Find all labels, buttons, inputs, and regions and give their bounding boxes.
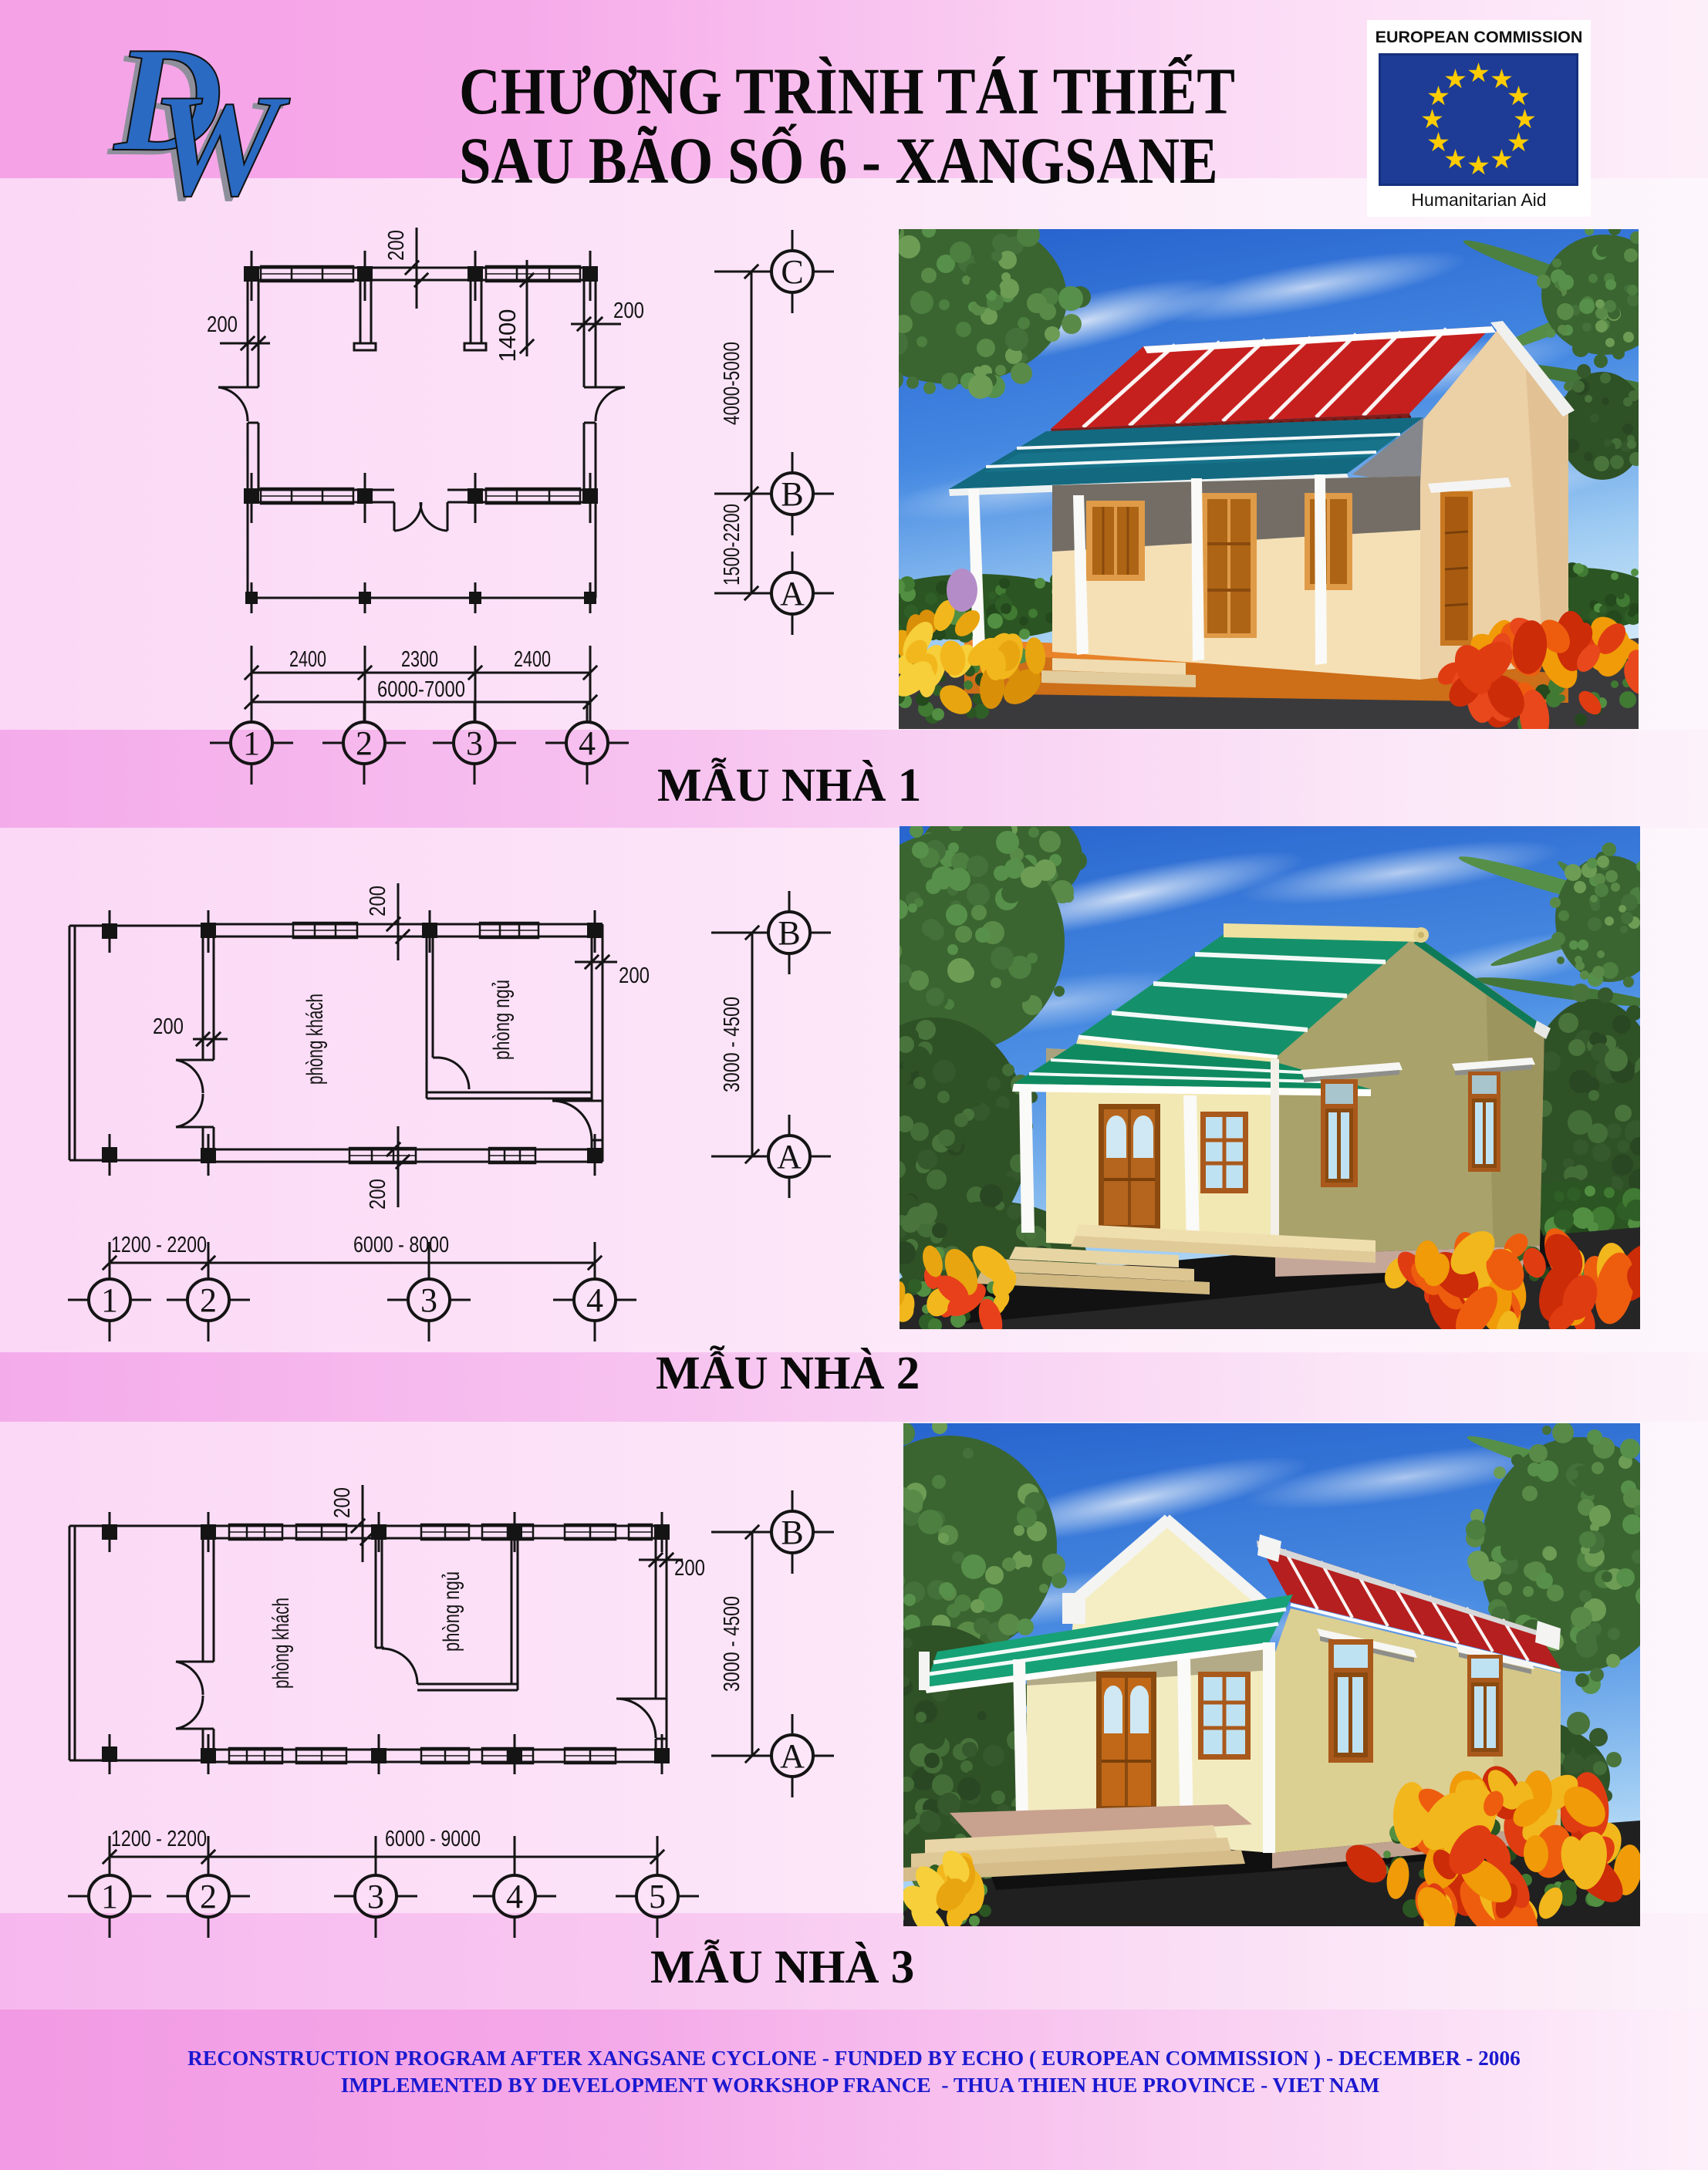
svg-text:1200 - 2200: 1200 - 2200 xyxy=(111,1233,207,1257)
svg-text:phòng khách: phòng khách xyxy=(302,994,328,1085)
svg-text:A: A xyxy=(777,1138,802,1176)
svg-text:4: 4 xyxy=(586,1281,603,1319)
svg-text:200: 200 xyxy=(674,1556,705,1581)
svg-text:2400: 2400 xyxy=(289,647,326,672)
svg-text:2: 2 xyxy=(356,724,373,762)
svg-text:6000 - 8000: 6000 - 8000 xyxy=(353,1233,449,1257)
svg-text:2400: 2400 xyxy=(514,647,551,672)
svg-text:B: B xyxy=(781,475,803,513)
svg-text:3000 - 4500: 3000 - 4500 xyxy=(720,1596,744,1692)
svg-text:4: 4 xyxy=(579,724,596,762)
svg-text:phòng khách: phòng khách xyxy=(268,1598,294,1689)
svg-text:2: 2 xyxy=(200,1281,217,1319)
svg-text:phòng ngủ: phòng ngủ xyxy=(439,1571,464,1652)
svg-text:A: A xyxy=(780,575,805,613)
svg-text:2300: 2300 xyxy=(401,647,438,672)
svg-text:200: 200 xyxy=(384,230,409,261)
svg-text:1200 - 2200: 1200 - 2200 xyxy=(111,1827,207,1851)
svg-text:1500-2200: 1500-2200 xyxy=(720,504,744,586)
svg-text:200: 200 xyxy=(619,964,650,988)
svg-text:6000 - 9000: 6000 - 9000 xyxy=(385,1827,481,1851)
svg-text:200: 200 xyxy=(613,299,644,323)
svg-text:3: 3 xyxy=(367,1878,384,1915)
svg-text:6000-7000: 6000-7000 xyxy=(377,677,465,702)
svg-text:1: 1 xyxy=(243,724,260,762)
svg-text:3: 3 xyxy=(466,724,483,762)
svg-text:B: B xyxy=(778,914,800,952)
svg-text:phòng ngủ: phòng ngủ xyxy=(489,980,515,1060)
svg-text:200: 200 xyxy=(207,312,238,337)
svg-text:1400: 1400 xyxy=(494,309,521,363)
svg-text:2: 2 xyxy=(200,1878,217,1915)
svg-text:200: 200 xyxy=(366,886,390,916)
svg-text:C: C xyxy=(781,253,803,291)
svg-text:1: 1 xyxy=(101,1281,118,1319)
svg-text:3000 - 4500: 3000 - 4500 xyxy=(720,997,744,1092)
svg-text:5: 5 xyxy=(649,1878,666,1915)
svg-text:B: B xyxy=(781,1514,803,1551)
svg-text:4: 4 xyxy=(506,1878,523,1915)
svg-text:200: 200 xyxy=(330,1487,355,1518)
svg-text:1: 1 xyxy=(101,1878,118,1915)
svg-text:200: 200 xyxy=(366,1179,390,1210)
svg-text:3: 3 xyxy=(420,1281,437,1319)
svg-text:4000-5000: 4000-5000 xyxy=(720,342,744,425)
svg-text:A: A xyxy=(780,1737,805,1775)
svg-text:200: 200 xyxy=(153,1014,184,1039)
